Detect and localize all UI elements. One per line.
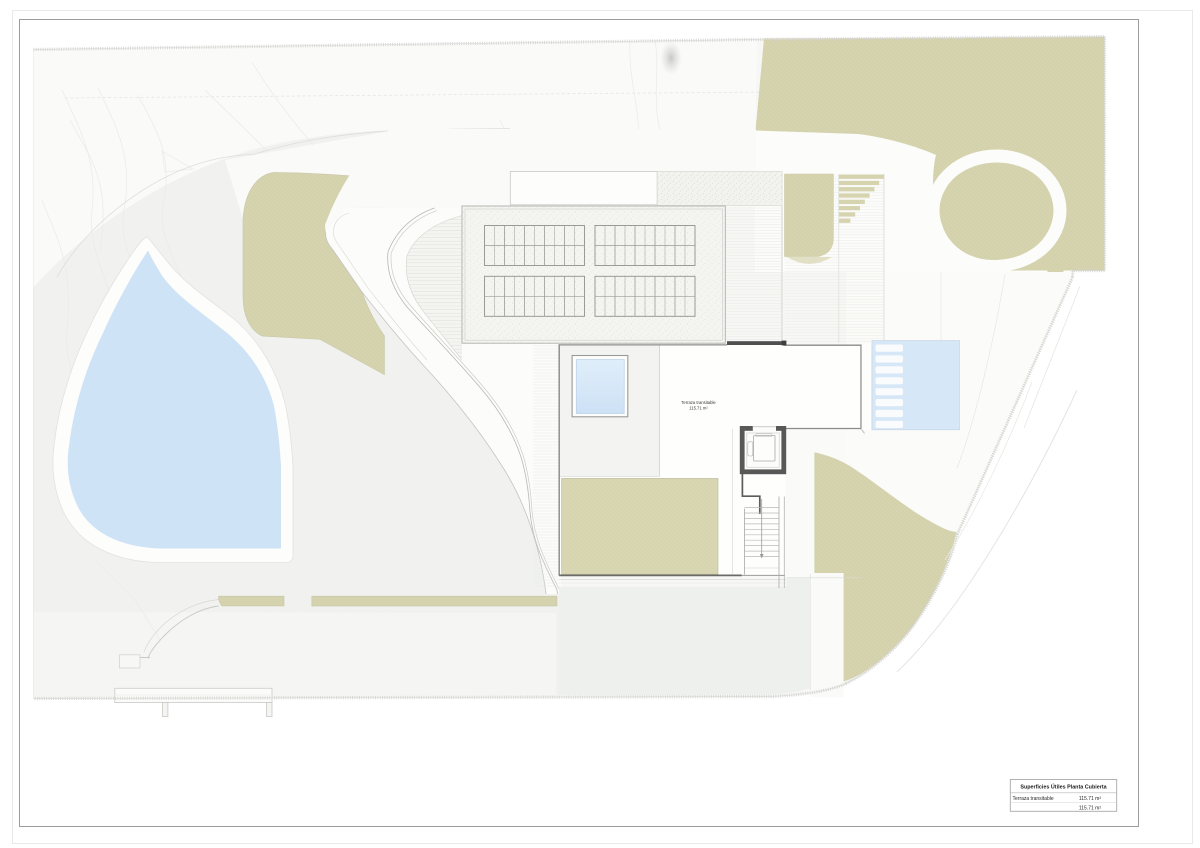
svg-text:115.71 m²: 115.71 m²	[1079, 796, 1101, 802]
svg-text:Superficies Útiles Planta Cubi: Superficies Útiles Planta Cubierta	[1020, 784, 1107, 791]
svg-text:115.71 m²: 115.71 m²	[1079, 805, 1101, 811]
svg-text:Terraza transitable: Terraza transitable	[681, 400, 716, 405]
svg-text:Terraza transitable: Terraza transitable	[1013, 796, 1054, 802]
svg-text:115.71 m²: 115.71 m²	[689, 406, 708, 411]
